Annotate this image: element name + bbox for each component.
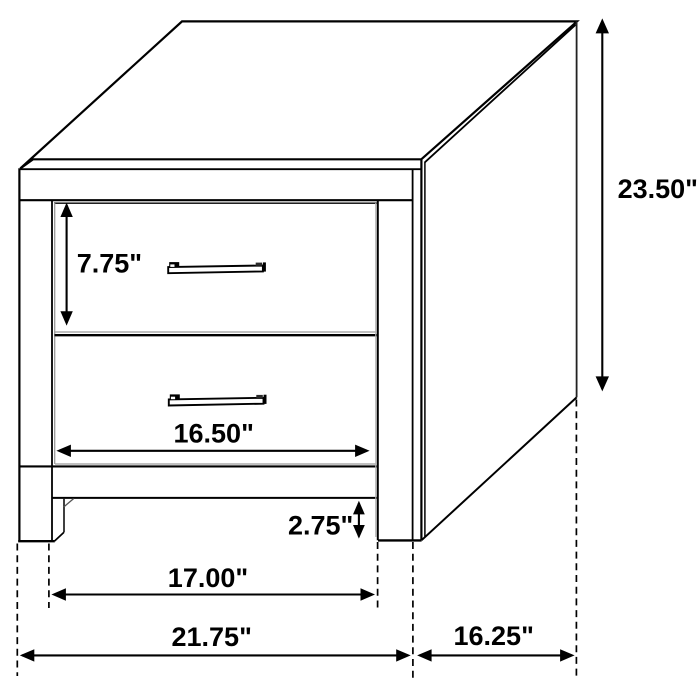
svg-text:23.50": 23.50" [618, 174, 698, 204]
svg-text:17.00": 17.00" [168, 563, 248, 593]
svg-text:16.50": 16.50" [174, 419, 254, 449]
svg-text:7.75": 7.75" [77, 249, 142, 279]
svg-text:2.75": 2.75" [288, 511, 353, 541]
svg-text:21.75": 21.75" [172, 622, 252, 652]
svg-text:16.25": 16.25" [454, 621, 534, 651]
